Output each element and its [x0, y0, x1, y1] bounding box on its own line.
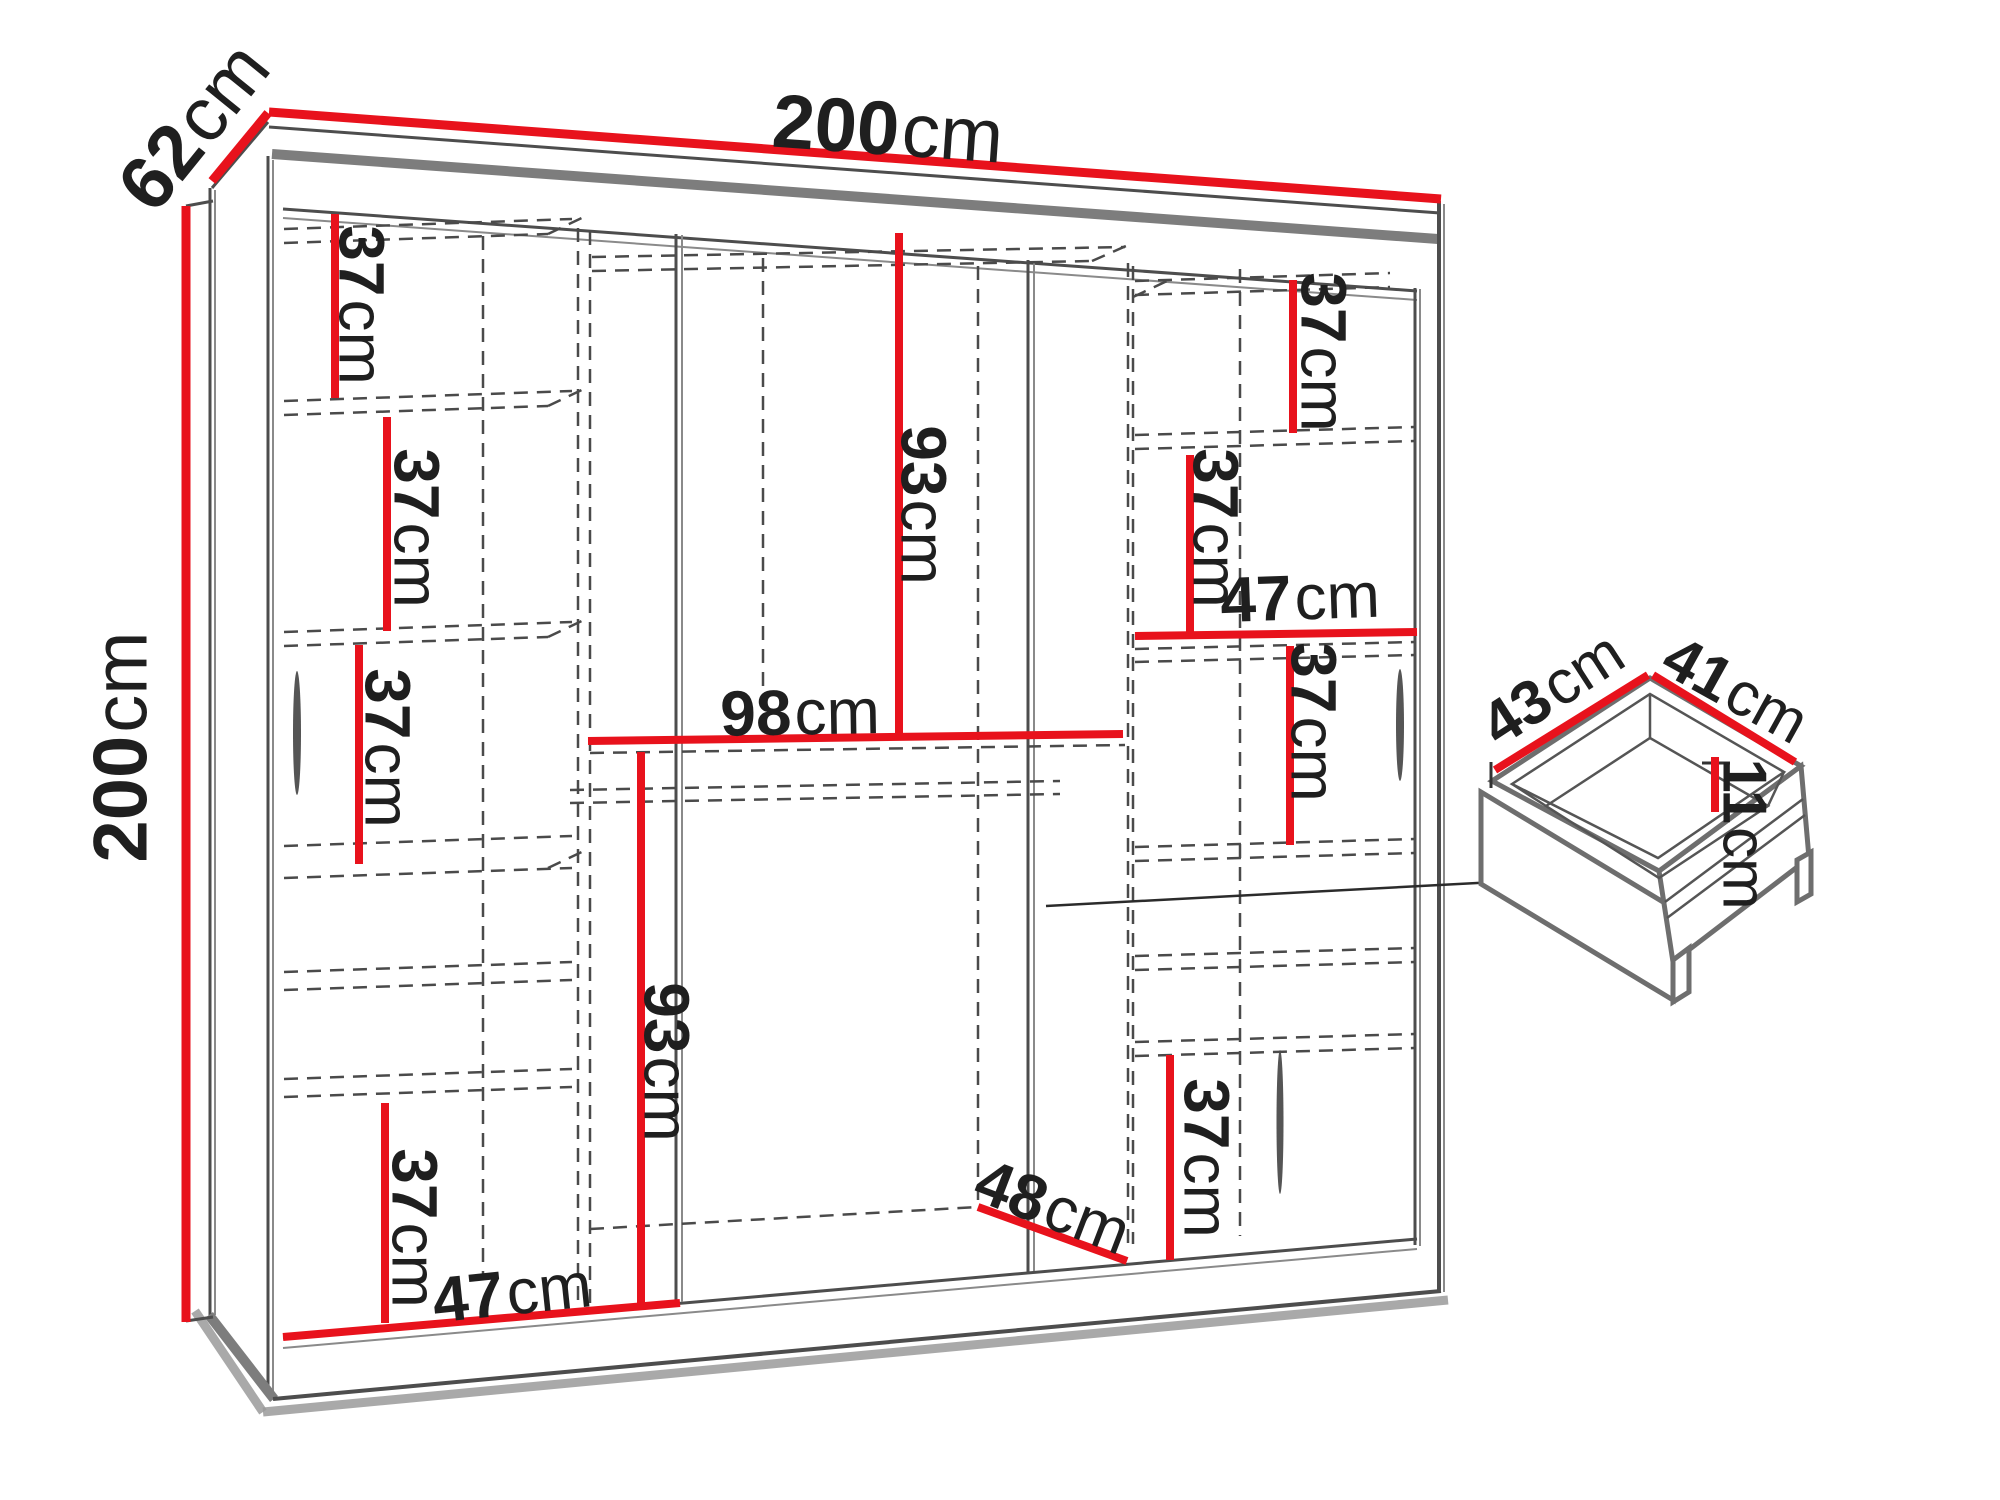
drawer-front-dashed-line	[1135, 962, 1414, 970]
shelf-dashed-line	[592, 247, 1125, 257]
shelf-dashed-line	[1135, 839, 1414, 847]
wardrobe-dimension-diagram: 62cm 200cm 200cm 37cm 37cm 37cm 37cm 47c…	[0, 0, 2000, 1500]
interior-ceiling-line-2	[283, 218, 1417, 300]
drawer-callout-line	[1046, 882, 1496, 906]
drawer-foot	[1797, 852, 1811, 902]
shelf-dashed-line	[1135, 441, 1414, 449]
drawer-front-dashed-line	[284, 962, 572, 972]
shelf-dashed-line	[592, 261, 1092, 271]
drawer-diagram: 43cm 41cm 11cm	[1469, 618, 1820, 1002]
shelf-dashed-line	[1135, 1048, 1414, 1056]
dim-label-right-37-1: 37cm	[1288, 272, 1360, 432]
interior-dashed-structure	[284, 216, 1414, 1308]
dim-label-middle-93-upper: 93cm	[888, 425, 960, 585]
shelf-dashed-line	[284, 406, 548, 415]
drawer-foot	[1673, 948, 1689, 1002]
shelf-dashed-line	[284, 622, 572, 632]
dim-label-drawer-11: 11cm	[1709, 758, 1778, 909]
dim-label-middle-93-lower: 93cm	[631, 982, 703, 1142]
dim-label-right-47: 47cm	[1219, 559, 1381, 637]
shelf-dashed-line	[284, 391, 572, 401]
door-handle-icon	[1396, 669, 1404, 781]
floor-back-dashed-line	[590, 1207, 978, 1229]
shelf-dashed-line	[1135, 642, 1414, 649]
drawer-front-dashed-line	[1135, 948, 1414, 956]
shelf-dashed-line	[284, 637, 548, 646]
door-handle-icon	[293, 671, 301, 795]
drawer-front-dashed-line	[284, 980, 572, 990]
drawer-front-dashed-line	[284, 1087, 572, 1097]
shelf-depth-diagonal	[548, 850, 586, 868]
door-handle-icon	[1277, 1050, 1284, 1194]
shelf-dashed-line	[1135, 427, 1414, 435]
dim-label-right-37-4: 37cm	[1171, 1078, 1243, 1238]
dim-label-width: 200cm	[770, 79, 1006, 180]
shelf-dashed-line	[284, 868, 572, 878]
shelf-dashed-line	[1135, 1034, 1414, 1042]
dim-label-left-37-2: 37cm	[381, 448, 453, 608]
shelf-dashed-line	[1135, 655, 1414, 662]
dim-label-left-37-1: 37cm	[326, 225, 398, 385]
dim-label-height: 200cm	[79, 631, 164, 862]
dim-label-right-37-3: 37cm	[1278, 642, 1350, 802]
dim-label-middle-48: 48cm	[966, 1144, 1141, 1268]
shelf-dashed-line	[284, 234, 548, 243]
floor-shadow-left	[195, 1311, 263, 1412]
diagram-canvas: 62cm 200cm 200cm 37cm 37cm 37cm 37cm 47c…	[0, 0, 2000, 1500]
wardrobe-diagram: 62cm 200cm 200cm 37cm 37cm 37cm 37cm 47c…	[79, 27, 1448, 1412]
dim-label-left-37-3: 37cm	[352, 668, 424, 828]
shelf-dashed-line	[1135, 853, 1414, 861]
drawer-front-dashed-line	[284, 1069, 572, 1079]
dim-label-middle-98: 98cm	[720, 675, 881, 750]
shelf-dashed-line	[284, 836, 572, 846]
